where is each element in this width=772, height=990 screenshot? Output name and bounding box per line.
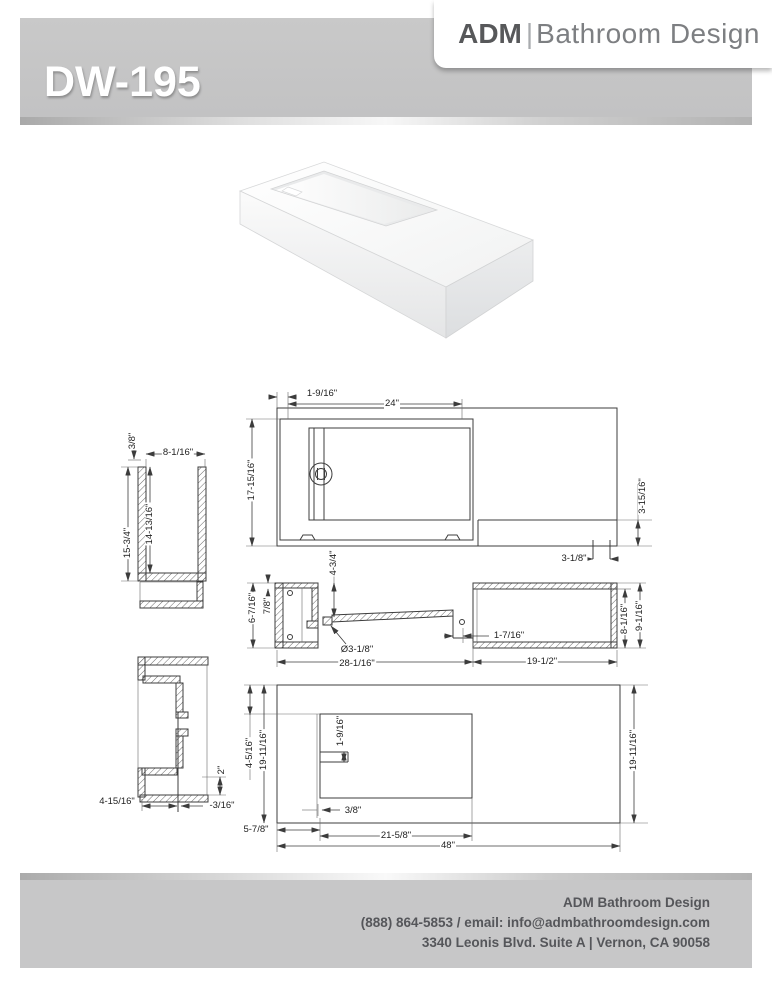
footer-address: 3340 Leonis Blvd. Suite A | Vernon, CA 9…	[361, 933, 710, 953]
footer-contact-block: ADM Bathroom Design (888) 864-5853 / ema…	[361, 893, 710, 953]
bottom-view	[244, 685, 648, 852]
drawing-sheet	[0, 0, 772, 990]
long-section-view	[247, 551, 646, 667]
plan-view	[246, 392, 652, 559]
footer: ADM Bathroom Design (888) 864-5853 / ema…	[20, 873, 752, 968]
end-section-view	[121, 446, 206, 608]
footer-company: ADM Bathroom Design	[361, 893, 710, 913]
product-3d-render	[240, 162, 533, 338]
spec-sheet-page: DW-195 ADM | Bathroom Design	[0, 0, 772, 990]
bracket-section-view	[138, 657, 226, 812]
footer-gloss-strip	[20, 873, 752, 880]
footer-phone-email: (888) 864-5853 / email: info@admbathroom…	[361, 913, 710, 933]
